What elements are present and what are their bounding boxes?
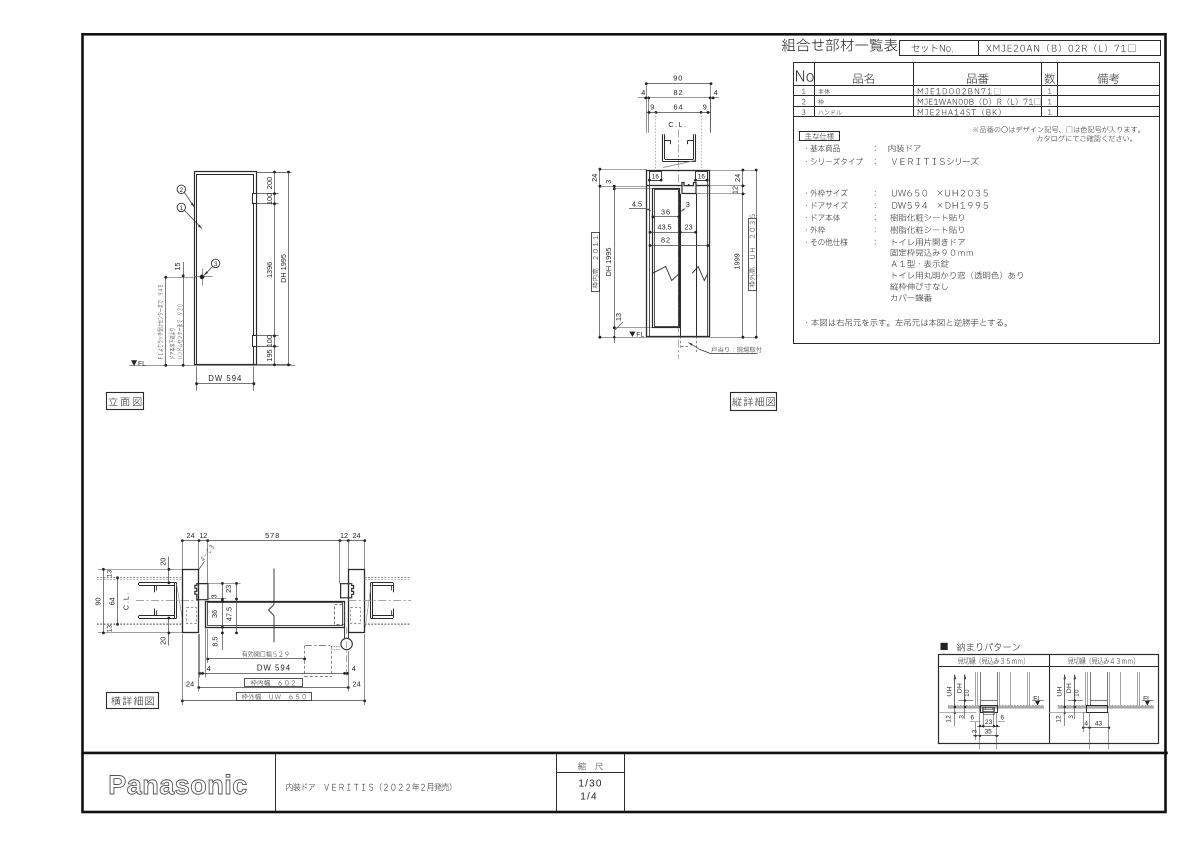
svg-text:10: 10	[964, 689, 971, 697]
svg-text:12: 12	[946, 715, 953, 723]
svg-text:3: 3	[210, 594, 219, 598]
svg-text:36: 36	[661, 207, 671, 216]
svg-text:UH: UH	[947, 686, 954, 696]
svg-text:90: 90	[673, 74, 683, 83]
svg-text:4: 4	[641, 88, 645, 97]
svg-text:1/4: 1/4	[580, 792, 598, 803]
svg-text:43.5: 43.5	[657, 223, 671, 232]
svg-text:12: 12	[1055, 715, 1062, 723]
svg-text:23: 23	[684, 223, 692, 232]
svg-text:FL: FL	[636, 331, 644, 338]
svg-text:C.L.: C.L.	[668, 120, 687, 129]
svg-text:3: 3	[604, 180, 613, 184]
svg-text:200: 200	[265, 177, 274, 189]
svg-text:DH 1995: DH 1995	[279, 254, 288, 283]
svg-text:24: 24	[352, 531, 360, 540]
svg-text:FL: FL	[138, 360, 146, 367]
svg-text:195: 195	[265, 349, 274, 361]
svg-text:24: 24	[187, 531, 195, 540]
svg-text:UH: UH	[1056, 686, 1063, 696]
svg-text:DW 594: DW 594	[208, 374, 242, 383]
svg-text:36: 36	[210, 610, 219, 618]
svg-text:4.5: 4.5	[632, 200, 642, 209]
svg-text:1396: 1396	[265, 262, 274, 278]
svg-text:DH 1995: DH 1995	[604, 248, 613, 277]
svg-text:100: 100	[265, 193, 274, 205]
svg-text:DW 594: DW 594	[257, 664, 291, 673]
svg-text:64: 64	[107, 597, 116, 605]
svg-text:4: 4	[207, 664, 211, 673]
svg-text:16: 16	[698, 174, 706, 181]
svg-text:100: 100	[265, 335, 274, 347]
svg-text:3: 3	[1068, 715, 1075, 719]
svg-text:16: 16	[652, 174, 660, 181]
svg-text:578: 578	[265, 531, 280, 540]
svg-text:DH: DH	[1066, 683, 1073, 693]
svg-text:20: 20	[159, 637, 168, 645]
svg-text:23: 23	[985, 719, 993, 726]
svg-text:12: 12	[340, 531, 348, 540]
svg-text:35: 35	[985, 729, 993, 736]
svg-text:9: 9	[703, 103, 707, 112]
svg-text:4: 4	[352, 664, 356, 673]
svg-text:15: 15	[175, 263, 182, 271]
svg-text:82: 82	[661, 236, 671, 245]
svg-text:10: 10	[1074, 689, 1081, 697]
svg-text:24: 24	[353, 679, 361, 688]
svg-text:1999: 1999	[733, 253, 742, 269]
svg-text:12: 12	[731, 186, 740, 194]
svg-text:6: 6	[1001, 715, 1005, 722]
svg-text:6: 6	[971, 715, 975, 722]
svg-text:4: 4	[714, 88, 718, 97]
svg-text:47.5: 47.5	[225, 607, 234, 621]
svg-text:82: 82	[673, 88, 683, 97]
svg-text:13: 13	[107, 570, 114, 578]
svg-text:1: 1	[180, 205, 184, 212]
svg-text:4: 4	[1084, 721, 1088, 728]
svg-text:24: 24	[733, 174, 742, 182]
svg-text:23: 23	[224, 585, 233, 593]
svg-text:43: 43	[1095, 721, 1103, 728]
svg-text:90: 90	[93, 597, 102, 605]
svg-text:12: 12	[199, 531, 207, 540]
svg-text:DH: DH	[956, 683, 963, 693]
svg-text:2: 2	[180, 187, 184, 194]
svg-text:C.L.: C.L.	[123, 591, 130, 610]
svg-text:Panasonic: Panasonic	[108, 770, 248, 800]
svg-text:24: 24	[186, 679, 194, 688]
svg-text:13: 13	[107, 625, 114, 633]
svg-text:13: 13	[614, 313, 623, 321]
svg-text:8.5: 8.5	[211, 637, 220, 647]
svg-text:24: 24	[590, 174, 599, 182]
svg-text:3: 3	[214, 261, 218, 268]
svg-text:64: 64	[673, 103, 683, 112]
svg-text:20: 20	[159, 558, 168, 566]
svg-text:9: 9	[650, 103, 654, 112]
svg-text:1/30: 1/30	[578, 779, 602, 790]
svg-text:3: 3	[686, 200, 690, 209]
